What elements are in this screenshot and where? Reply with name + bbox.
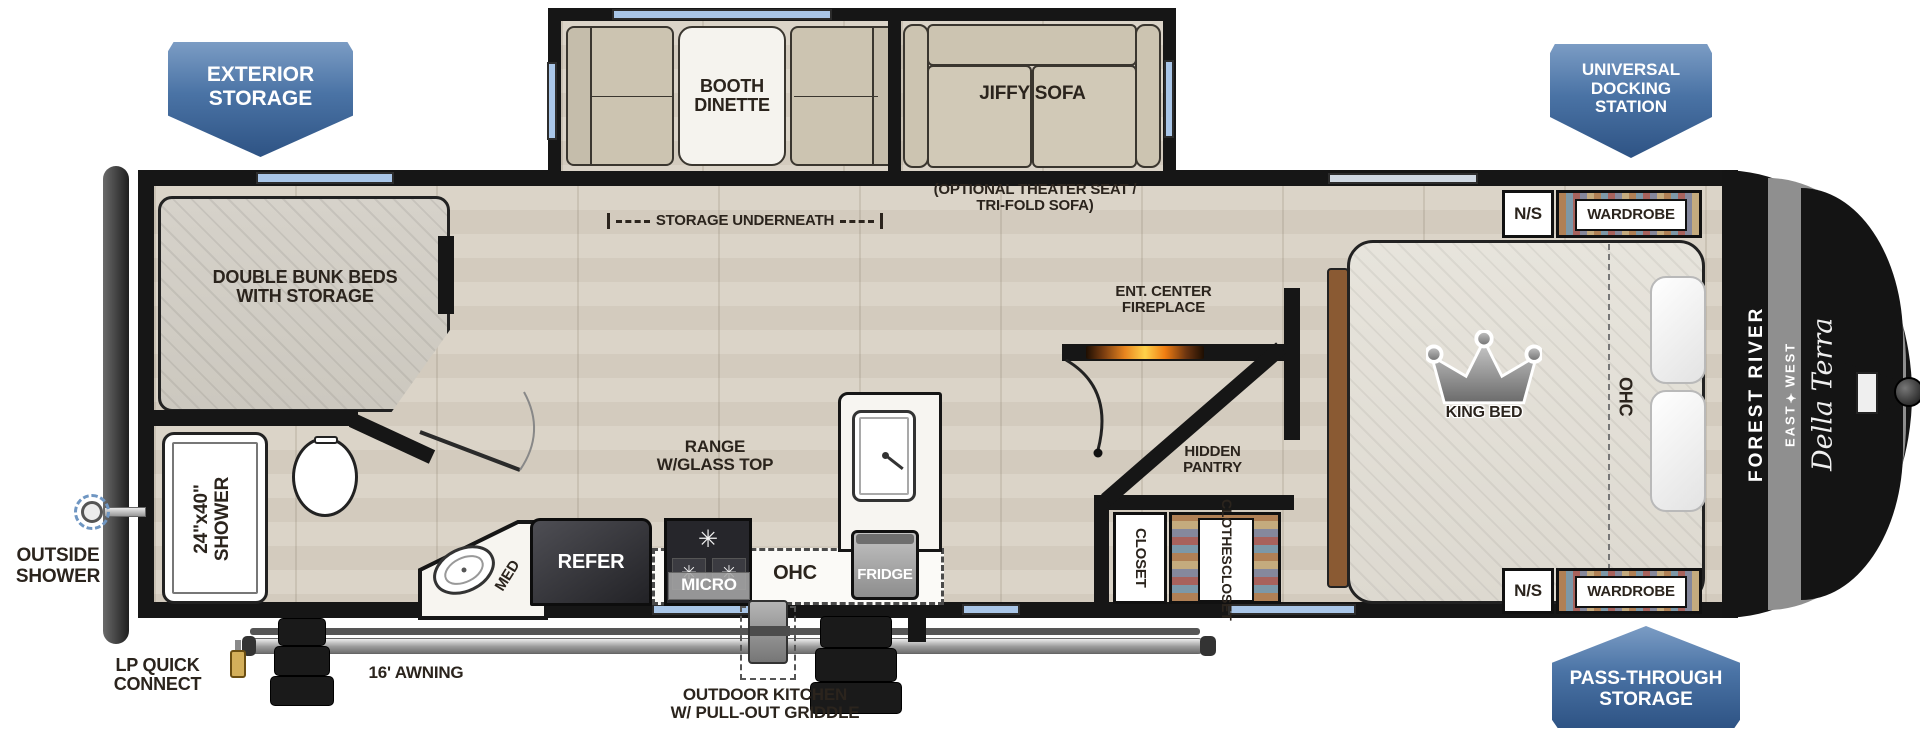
lp-valve-stem: [235, 640, 241, 650]
awning-label: 16' AWNING: [336, 664, 496, 682]
brand-east-west: EAST✦WEST: [1779, 186, 1801, 602]
storage-underneath-label: STORAGE UNDERNEATH: [656, 213, 834, 229]
pillow-top: [1650, 276, 1706, 384]
sofa-seat-left: [927, 65, 1032, 168]
awning-tube: [246, 638, 1206, 654]
brand-model-script: Della Terra: [1802, 186, 1844, 602]
hitch-coupler: [1894, 377, 1920, 407]
wardrobe-top-label: WARDROBE: [1575, 199, 1687, 231]
window-dinette-slide-top: [612, 9, 832, 20]
booth-dinette-label: BOOTHDINETTE: [694, 77, 770, 116]
pass-through-storage-badge: PASS-THROUGHSTORAGE: [1552, 626, 1740, 728]
bedroom-ohc-label: OHC: [1612, 362, 1638, 432]
jiffy-sofa-label: JIFFY SOFA: [940, 84, 1125, 105]
shower-label: 24"x40"SHOWER: [183, 439, 243, 599]
outdoor-kitchen-label: OUTDOOR KITCHENW/ PULL-OUT GRIDDLE: [640, 686, 890, 723]
fridge-label: FRIDGE: [851, 567, 919, 583]
window-bottom-entry: [962, 604, 1020, 615]
fireplace-flames: [1086, 346, 1204, 359]
pantry-bottom-wall: [1094, 495, 1294, 510]
outside-shower-pipe: [104, 507, 146, 517]
window-dinette-slide-left: [547, 62, 557, 140]
hidden-pantry-label: HIDDENPANTRY: [1150, 444, 1275, 476]
nightstand-bottom: N/S: [1502, 568, 1554, 614]
bed-base-board: [1327, 268, 1349, 588]
window-bedroom-top: [1328, 173, 1478, 184]
sofa-arm-left: [903, 24, 929, 168]
wardrobe-bottom: WARDROBE: [1556, 568, 1702, 614]
range-burner-round: ✳: [692, 524, 724, 556]
closet-label: CLOSET: [1116, 515, 1164, 601]
nightstand-top: N/S: [1502, 190, 1554, 238]
outside-shower-head-icon: [74, 494, 110, 530]
pillow-bottom: [1650, 390, 1706, 512]
window-rear-top: [256, 172, 394, 184]
brand-forest-river: FOREST RIVER: [1742, 186, 1772, 602]
lp-quick-connect-label: LP QUICKCONNECT: [90, 656, 225, 695]
wardrobe-top: WARDROBE: [1556, 190, 1702, 238]
outdoor-griddle-band: [750, 626, 790, 636]
dinette-bench-right: [790, 26, 898, 166]
storage-underneath-callout: STORAGE UNDERNEATH: [590, 208, 900, 234]
window-sofa-slide-right: [1164, 60, 1174, 138]
toilet: [292, 437, 358, 517]
closet: CLOSET: [1113, 512, 1167, 604]
awning-rail-upper: [250, 628, 1200, 635]
crown-icon: [1426, 330, 1542, 412]
closet-left-wall: [1094, 495, 1109, 605]
sofa-arm-right: [1135, 24, 1161, 168]
bathroom-wall: [152, 410, 358, 426]
sofa-back: [927, 24, 1137, 66]
jiffy-option-label: (OPTIONAL THEATER SEAT /TRI-FOLD SOFA): [900, 182, 1170, 214]
wardrobe-bottom-label: WARDROBE: [1575, 576, 1687, 608]
booth-dinette-slideout: BOOTHDINETTE: [548, 8, 916, 184]
universal-docking-badge: UNIVERSAL DOCKING STATION: [1550, 44, 1712, 158]
rear-entry-step: [270, 616, 336, 708]
rv-floorplan-diagram: FOREST RIVER EAST✦WEST Della Terra DOUBL…: [0, 0, 1920, 739]
clothes-closet: CLOTHESCLOSET: [1169, 512, 1281, 604]
kitchen-ohc-label: OHC: [760, 563, 830, 585]
toilet-seat-line: [314, 436, 338, 444]
micro-label: MICRO: [668, 576, 750, 594]
bunk-label: DOUBLE BUNK BEDSWITH STORAGE: [175, 268, 435, 307]
window-bottom-bedroom: [1228, 604, 1356, 615]
refer-label: REFER: [532, 552, 650, 574]
awning-endcap-right: [1200, 636, 1216, 656]
clothes-closet-label: CLOTHESCLOSET: [1198, 518, 1254, 602]
fireplace-label: ENT. CENTERFIREPLACE: [1086, 284, 1241, 316]
king-bed-label: KING BED: [1420, 404, 1548, 421]
hitch-jack: [1856, 372, 1878, 414]
fridge-handle: [856, 534, 914, 544]
bedroom-divider-wall: [1284, 288, 1300, 440]
sofa-seat-right: [1032, 65, 1137, 168]
exterior-storage-badge: EXTERIORSTORAGE: [168, 42, 353, 157]
bunk-wall-stub: [438, 236, 454, 314]
range-label: RANGEW/GLASS TOP: [630, 438, 800, 475]
dinette-table: BOOTHDINETTE: [678, 26, 786, 166]
lp-valve-icon: [230, 650, 246, 678]
outside-shower-label: OUTSIDESHOWER: [0, 546, 116, 587]
bed-fold-dashed-line: [1608, 244, 1610, 600]
awning-bracket: [908, 614, 926, 642]
dinette-bench-left: [566, 26, 674, 166]
